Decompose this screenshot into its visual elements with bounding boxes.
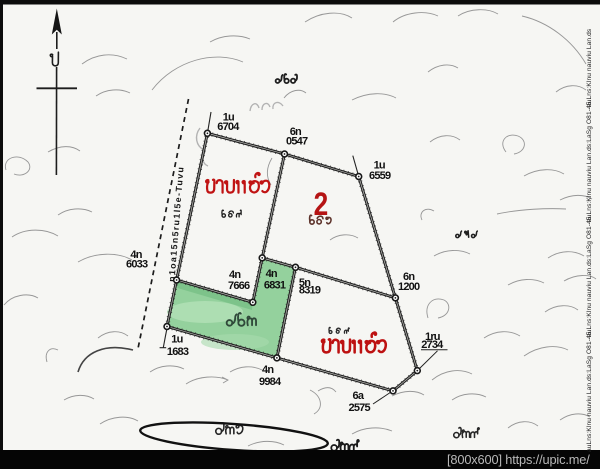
svg-text:auLns:Klnu nauviu Lan.ds:LaSg: auLns:Klnu nauviu Lan.ds:LaSg O81-45 <box>586 331 593 452</box>
svg-text:1u: 1u <box>171 333 182 345</box>
svg-text:6033: 6033 <box>126 258 148 270</box>
svg-text:7666: 7666 <box>228 280 250 292</box>
svg-text:auLns:Klnu nauviu Lan.ds: auLns:Klnu nauviu Lan.ds <box>586 28 593 107</box>
svg-text:6a: 6a <box>353 390 365 402</box>
svg-text:2575: 2575 <box>349 402 371 414</box>
svg-text:1683: 1683 <box>167 346 189 358</box>
svg-text:auLns:Klnu nauviu Lan.ds:LaSg: auLns:Klnu nauviu Lan.ds:LaSg O81-45 <box>586 216 593 337</box>
svg-text:auLns:Klnu nauviu Lan.ds:LaSg: auLns:Klnu nauviu Lan.ds:LaSg O81-45 <box>586 101 593 222</box>
svg-text:6831: 6831 <box>264 279 286 291</box>
svg-text:1200: 1200 <box>398 281 420 293</box>
svg-text:0547: 0547 <box>286 135 308 147</box>
svg-text:2734: 2734 <box>421 339 444 351</box>
svg-text:6704: 6704 <box>217 121 240 133</box>
svg-text:[800x600] https://upic.me/: [800x600] https://upic.me/ <box>447 452 590 467</box>
svg-text:6559: 6559 <box>369 170 391 182</box>
svg-text:9984: 9984 <box>259 376 282 388</box>
svg-text:4n: 4n <box>262 364 274 376</box>
svg-text:4n: 4n <box>266 268 278 280</box>
svg-text:8319: 8319 <box>299 285 321 297</box>
